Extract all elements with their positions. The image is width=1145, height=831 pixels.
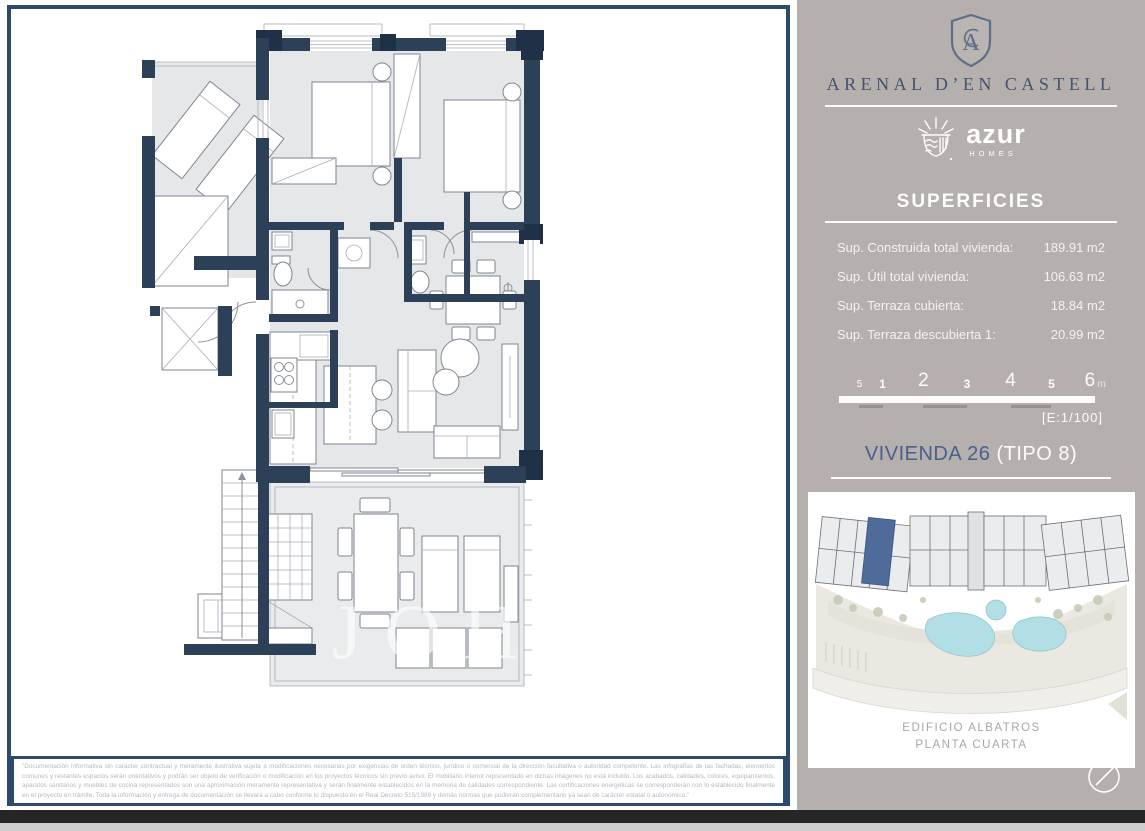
sofa-horizontal [434,426,500,458]
scale-tick: 2 [918,370,929,392]
brand-name: azur [966,122,1026,146]
unit-type: (TIPO 8) [996,443,1077,465]
brand-tagline: HOMES [969,149,1026,158]
tv-unit [502,344,518,430]
closet-between-bedrooms [394,54,420,158]
bed-bedroom2 [444,83,521,209]
watermark: JOH [332,588,541,675]
scale-ratio-note: [E:1/100] [797,410,1103,425]
floor-plan-drawing: JOH [0,0,797,810]
surface-value: 106.63 m2 [1044,269,1105,284]
scale-segment [923,405,967,408]
surface-value: 189.91 m2 [1044,240,1105,255]
scale-unit: m [1098,379,1106,390]
azur-homes-icon [916,117,956,163]
wardrobe-bedroom1 [272,158,336,184]
siteplan-caption-line2: PLANTA CUARTA [808,737,1135,754]
compass-icon [1084,757,1124,797]
superficies-title: SUPERFICIES [797,191,1145,213]
scale-segment [859,405,882,408]
table-row: Sup. Construida total vivienda: 189.91 m… [837,240,1105,269]
scale-bar-line [839,396,1095,403]
scale-tick: 1 [879,377,886,391]
surface-label: Sup. Terraza cubierta: [837,298,964,313]
table-row: Sup. Terraza cubierta: 18.84 m2 [837,298,1105,327]
table-row: Sup. Terraza descubierta 1: 20.99 m2 [837,327,1105,356]
siteplan-card: EDIFICIO ALBATROS PLANTA CUARTA [808,492,1135,768]
siteplan-caption-line1: EDIFICIO ALBATROS [808,720,1135,737]
disclaimer-text: "Documentación informativa sin carácter … [22,762,775,800]
sofa-vertical [398,350,436,432]
siteplan-drawing [808,492,1135,732]
surface-label: Sup. Construida total vivienda: [837,240,1013,255]
divider [825,105,1117,107]
project-title: ARENAL D’EN CASTELL [797,74,1145,95]
scale-tick: 5 [857,379,863,390]
surface-value: 18.84 m2 [1051,298,1105,313]
scale-tick: 3 [964,377,971,391]
sliding-door [310,468,486,476]
info-sidebar: A ARENAL D’EN CASTELL azur HOMES SUPERFI… [797,0,1145,810]
staircase [222,470,262,640]
bottom-black-bar [0,810,1145,823]
surface-label: Sup. Útil total vivienda: [837,269,969,284]
unit-title: VIVIENDA 26 (TIPO 8) [797,443,1145,466]
disclaimer-box: "Documentación informativa sin carácter … [11,756,786,806]
divider [825,221,1117,223]
monogram-a: A [962,30,980,56]
siteplan-caption: EDIFICIO ALBATROS PLANTA CUARTA [808,720,1135,755]
scale-tick: 5 [1048,377,1055,391]
scale-segment [1011,405,1052,408]
unit-name: VIVIENDA 26 [865,443,991,465]
shield-logo: A [797,12,1145,68]
floor-plan-sheet: JOH "Documentación informativa sin carác… [0,0,797,810]
installation-shaft [152,196,228,286]
scale-tick: 4 [1005,370,1016,392]
surface-value: 20.99 m2 [1051,327,1105,342]
scale-tick: 6 [1085,370,1096,392]
surface-label: Sup. Terraza descubierta 1: [837,327,996,342]
superficies-table: Sup. Construida total vivienda: 189.91 m… [837,240,1105,356]
brochure-page: { "sidebar": { "project_title": "ARENAL … [0,0,1145,831]
building-band [815,512,1128,592]
bottom-gray-strip [0,823,1145,831]
elevator [162,308,218,370]
vanity [338,238,370,268]
table-row: Sup. Útil total vivienda: 106.63 m2 [837,269,1105,298]
brand-logo: azur HOMES [797,114,1145,166]
divider [831,477,1111,479]
